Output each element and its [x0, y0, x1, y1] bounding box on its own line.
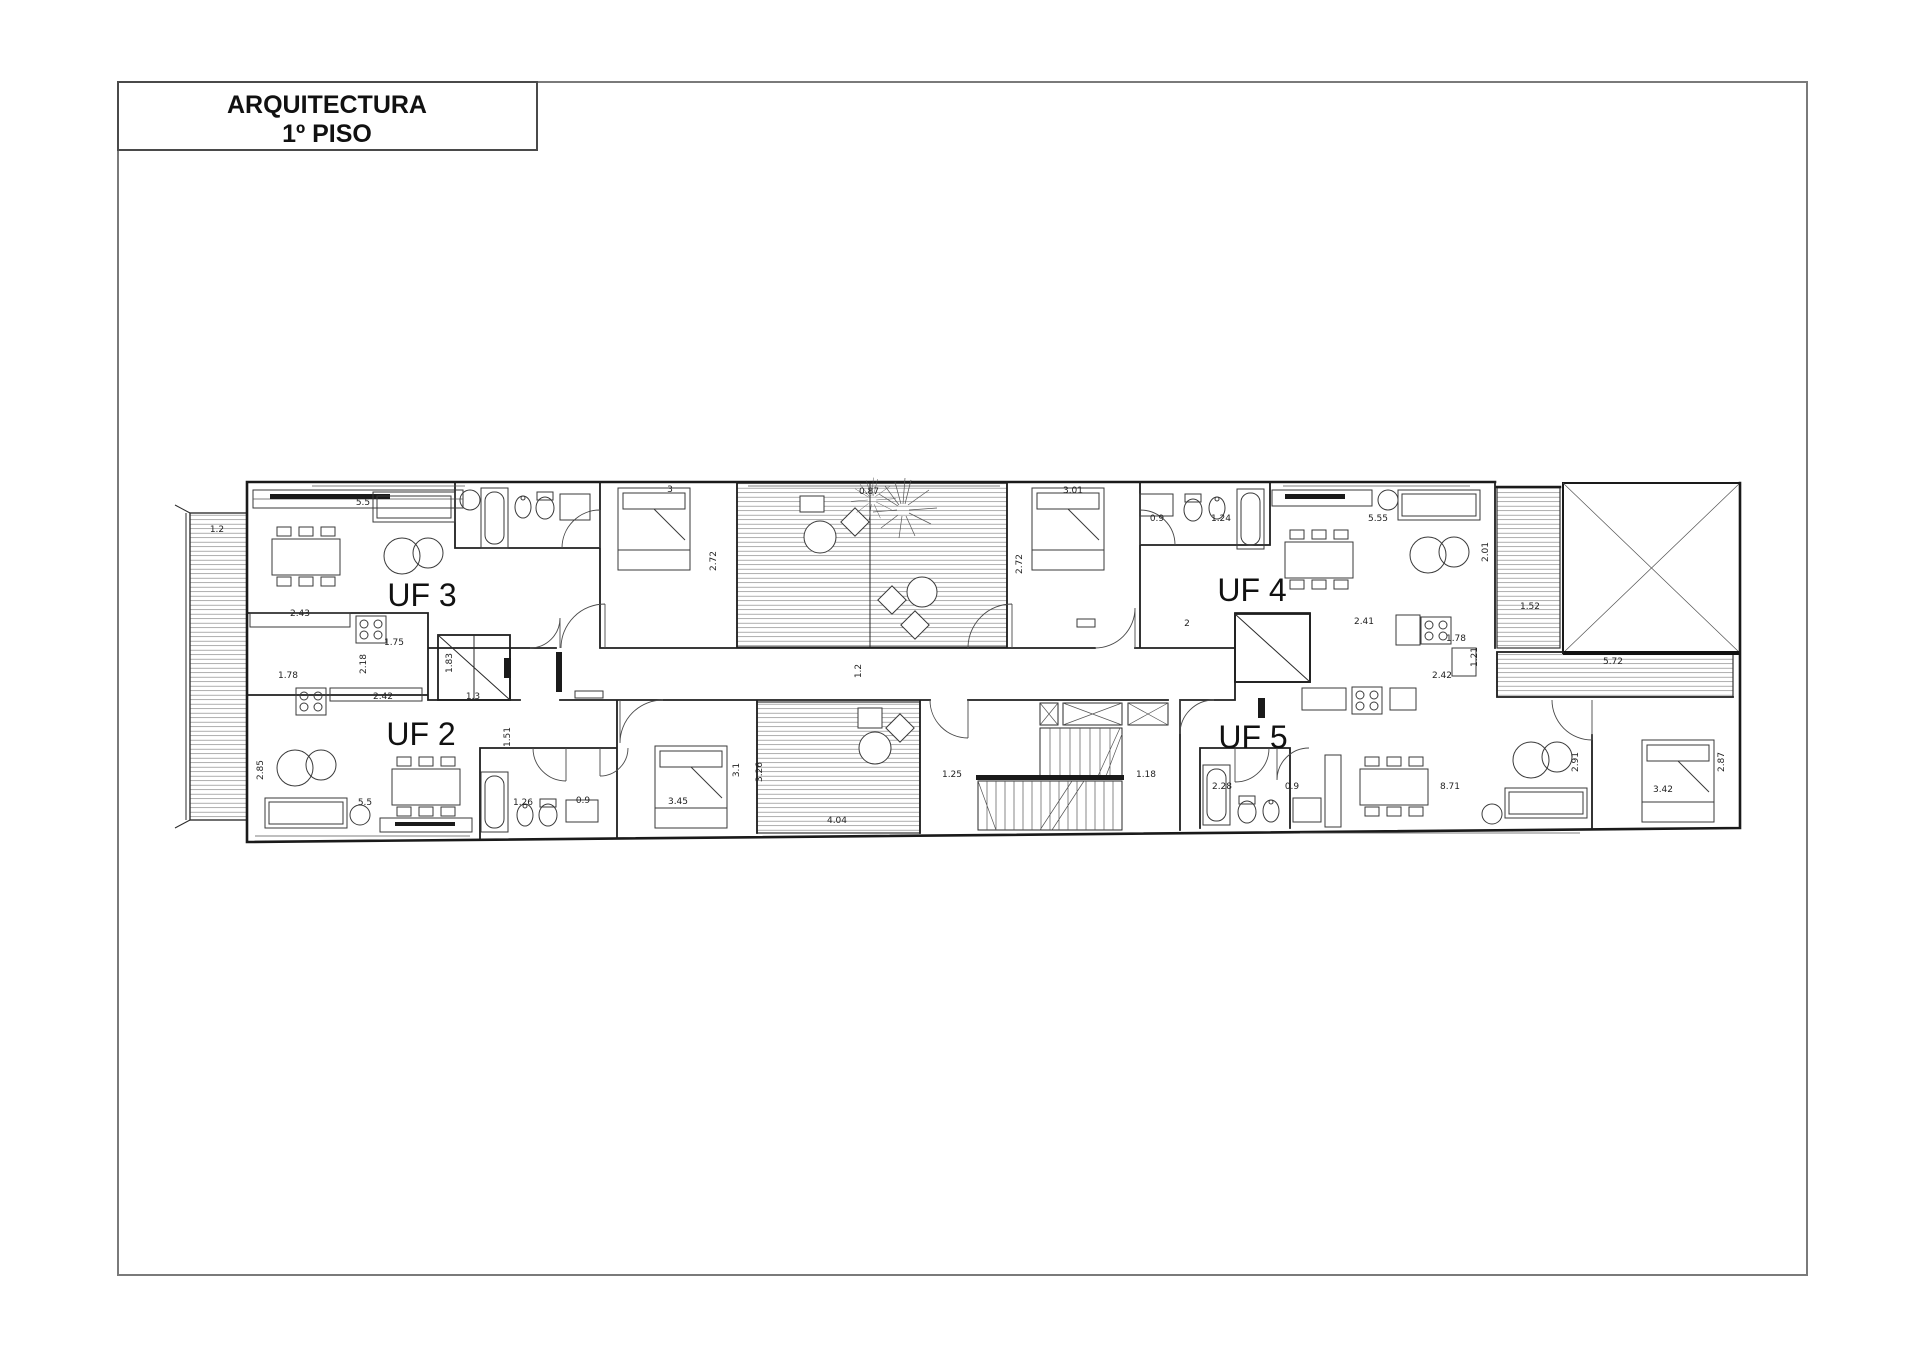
dim-label: 2.18	[359, 654, 369, 674]
floor-plan: UF 3 UF 4 UF 2 UF 5 5.5 1.2 2.43 1.75 2.…	[175, 478, 1740, 842]
dim-label: 2.85	[256, 760, 266, 780]
dim-label: 0.9	[1285, 782, 1300, 792]
kitchen-counter	[1302, 688, 1346, 710]
planter	[858, 708, 882, 728]
bathtub	[1203, 765, 1230, 825]
dim-label: 1.51	[503, 727, 513, 747]
stairs	[976, 703, 1168, 830]
balcony-right-strip	[1497, 487, 1560, 648]
dim-label: 1.75	[384, 638, 404, 648]
armchairs	[1513, 742, 1572, 778]
title-block: ARQUITECTURA 1º PISO	[118, 82, 537, 150]
dim-label: 2.42	[1432, 671, 1452, 681]
patio-table	[804, 521, 836, 553]
uf2-fixtures	[265, 688, 727, 832]
dim-label: 2.91	[1571, 752, 1581, 772]
dim-label: 0.87	[859, 487, 879, 497]
stove	[296, 688, 326, 715]
unit-label-uf3: UF 3	[387, 577, 456, 613]
bed	[1032, 488, 1104, 570]
dim-label: 1.52	[1520, 602, 1540, 612]
vanity	[1293, 798, 1321, 822]
dim-label: 2.72	[709, 551, 719, 571]
dim-label: 1.78	[278, 671, 298, 681]
dim-label: 5.55	[1368, 514, 1388, 524]
sink	[1378, 490, 1398, 510]
balcony-left	[190, 513, 247, 820]
dining-table	[1285, 530, 1353, 589]
dim-label: 1.18	[1136, 770, 1156, 780]
stair-rail	[976, 775, 1124, 780]
dim-label: 5.5	[358, 798, 372, 808]
title-line-1: ARQUITECTURA	[227, 91, 427, 119]
side-table	[350, 805, 370, 825]
cabinet	[1325, 755, 1341, 827]
bed	[618, 488, 690, 570]
door-threshold	[1077, 619, 1095, 627]
kitchen-counter	[1396, 615, 1420, 645]
dining-table	[392, 757, 460, 816]
door-jamb	[556, 652, 562, 692]
stove	[356, 616, 386, 643]
bathtub	[481, 772, 508, 832]
kitchen-counter	[1390, 688, 1416, 710]
dim-label: 1.78	[1446, 634, 1466, 644]
unit-label-uf2: UF 2	[386, 716, 455, 752]
dim-label: 1.25	[942, 770, 962, 780]
toilet	[1238, 796, 1256, 823]
plan-canvas: ARQUITECTURA 1º PISO	[0, 0, 1920, 1357]
dim-label: 2.42	[373, 692, 393, 702]
patio-table	[859, 732, 891, 764]
dim-label: 2.01	[1481, 542, 1491, 562]
bidet	[1263, 800, 1279, 822]
planter	[800, 496, 824, 512]
skylight-void	[1563, 483, 1740, 653]
deck-top-center	[737, 483, 1007, 647]
dim-label: 2.28	[1212, 782, 1232, 792]
laundry-sink	[1140, 494, 1173, 516]
bed	[1642, 740, 1714, 822]
armchairs	[384, 538, 443, 574]
dim-label: 1.2	[210, 525, 224, 535]
deck-hatch	[175, 483, 1733, 833]
dim-label: 1.3	[466, 692, 480, 702]
dim-label: 0.9	[1150, 514, 1165, 524]
dim-label: 0.9	[576, 796, 591, 806]
unit-label-uf4: UF 4	[1217, 572, 1286, 608]
dim-label: 3.26	[755, 762, 765, 782]
dining-table	[272, 527, 340, 586]
sofa	[373, 492, 455, 522]
door-threshold	[575, 691, 603, 698]
drawing-sheet: ARQUITECTURA 1º PISO	[0, 0, 1920, 1357]
toilet	[536, 492, 554, 519]
toilet	[539, 799, 557, 826]
dim-label: 3.45	[668, 797, 688, 807]
dim-label: 1.21	[1470, 647, 1480, 667]
uf5-fixtures	[1203, 687, 1714, 827]
uf3-fixtures	[250, 488, 690, 643]
dining-table	[1360, 757, 1428, 816]
title-line-2: 1º PISO	[282, 120, 372, 148]
armchairs	[277, 750, 336, 786]
dim-label: 2.43	[290, 609, 310, 619]
dim-label: 3	[667, 485, 673, 495]
dim-label: 5.5	[356, 498, 370, 508]
dim-label: 2.72	[1015, 554, 1025, 574]
dim-label: 1.2	[854, 664, 864, 678]
door-arcs	[530, 510, 1592, 782]
toilet	[1184, 494, 1202, 521]
bathtub	[1237, 489, 1264, 549]
patio-table	[907, 577, 937, 607]
dim-label: 1.26	[513, 798, 533, 808]
bidet	[515, 496, 531, 518]
sofa	[1505, 788, 1587, 818]
dim-label: 1.24	[1211, 514, 1231, 524]
unit-label-uf5: UF 5	[1218, 719, 1287, 755]
stove	[1352, 687, 1382, 714]
bed	[655, 746, 727, 828]
sofa	[1398, 490, 1480, 520]
dim-label: 4.04	[827, 816, 847, 826]
dim-label: 8.71	[1440, 782, 1460, 792]
vanity	[560, 494, 590, 520]
dim-label: 2.87	[1717, 752, 1727, 772]
side-table	[1482, 804, 1502, 824]
dim-label: 3.01	[1063, 486, 1083, 496]
sofa	[265, 798, 347, 828]
dim-label: 5.72	[1603, 657, 1623, 667]
armchairs	[1410, 537, 1469, 573]
dim-label: 3.1	[732, 763, 742, 777]
dim-label: 2.41	[1354, 617, 1374, 627]
elevator-right	[1235, 614, 1310, 718]
dim-label: 2	[1184, 619, 1190, 629]
dim-label: 3.42	[1653, 785, 1673, 795]
dim-label: 1.83	[445, 653, 455, 673]
bathtub	[481, 488, 508, 548]
